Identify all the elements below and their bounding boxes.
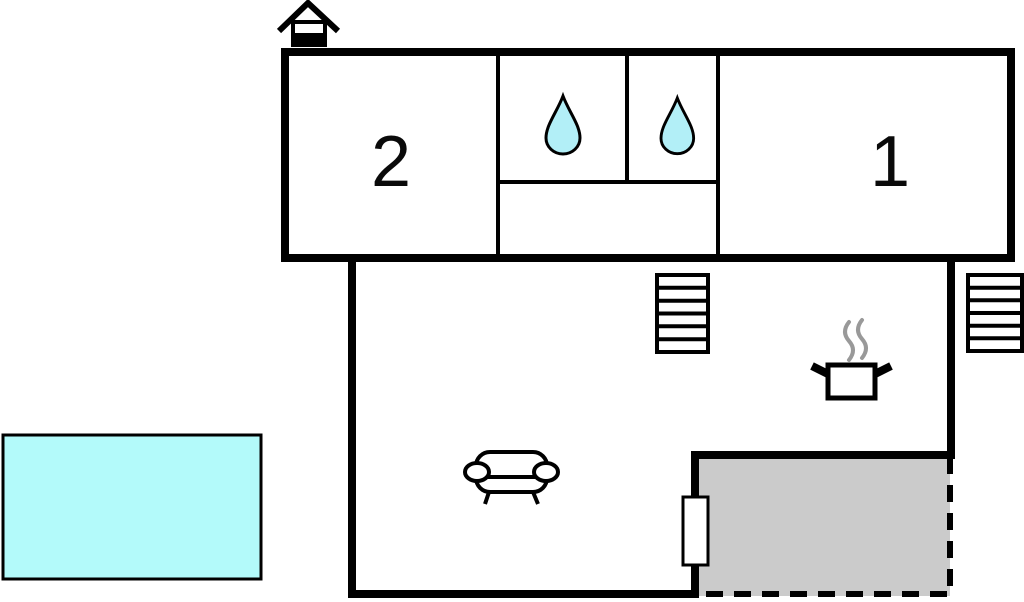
sofa-icon [465, 452, 558, 504]
terrace-area [696, 455, 950, 596]
room-2-label: 2 [371, 122, 411, 202]
stairs-icon-middle [657, 275, 708, 352]
pool-area [3, 435, 261, 579]
cooking-pot-icon [812, 365, 891, 398]
steam-icon [845, 320, 866, 360]
lower-floor-left-bottom-wall [352, 258, 698, 594]
house-marker-icon [279, 3, 338, 45]
room-1-label: 1 [870, 122, 910, 202]
floor-plan-canvas: 2 1 [0, 0, 1024, 602]
stairs-icon-right [968, 275, 1022, 351]
floor-plan: 2 1 [0, 0, 1024, 602]
door-marker [683, 497, 708, 565]
